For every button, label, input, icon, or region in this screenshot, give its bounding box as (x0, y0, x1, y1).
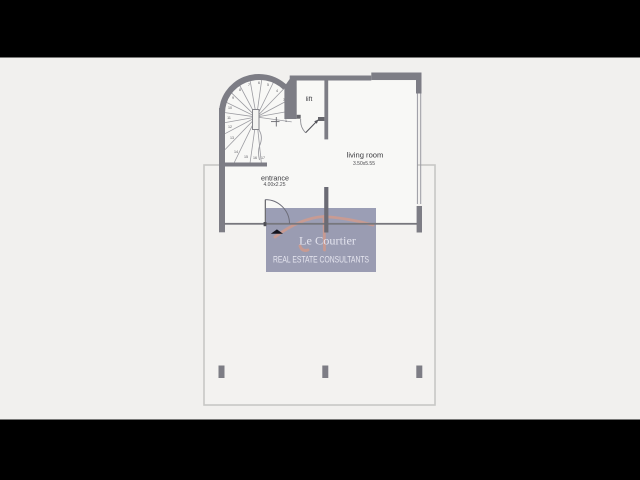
svg-text:14: 14 (234, 150, 238, 154)
svg-text:10: 10 (228, 106, 232, 110)
svg-text:4: 4 (276, 89, 278, 93)
svg-text:5: 5 (267, 83, 269, 87)
svg-text:16: 16 (253, 156, 257, 160)
svg-text:6: 6 (258, 81, 260, 85)
svg-text:9: 9 (232, 96, 234, 100)
svg-text:1: 1 (285, 119, 287, 123)
svg-text:13: 13 (230, 136, 234, 140)
svg-text:living room: living room (347, 151, 384, 160)
svg-text:12: 12 (228, 125, 232, 129)
svg-text:17: 17 (261, 156, 265, 160)
svg-text:lift: lift (306, 96, 313, 103)
svg-text:7: 7 (248, 83, 250, 87)
svg-text:REAL ESTATE CONSULTANTS: REAL ESTATE CONSULTANTS (273, 255, 369, 265)
svg-text:4.00x2.25: 4.00x2.25 (264, 182, 286, 188)
svg-text:3.50x5.55: 3.50x5.55 (353, 161, 375, 167)
svg-text:Le Courtier: Le Courtier (299, 236, 356, 248)
svg-text:15: 15 (244, 155, 248, 159)
svg-text:11: 11 (227, 116, 231, 120)
svg-text:8: 8 (239, 88, 241, 92)
